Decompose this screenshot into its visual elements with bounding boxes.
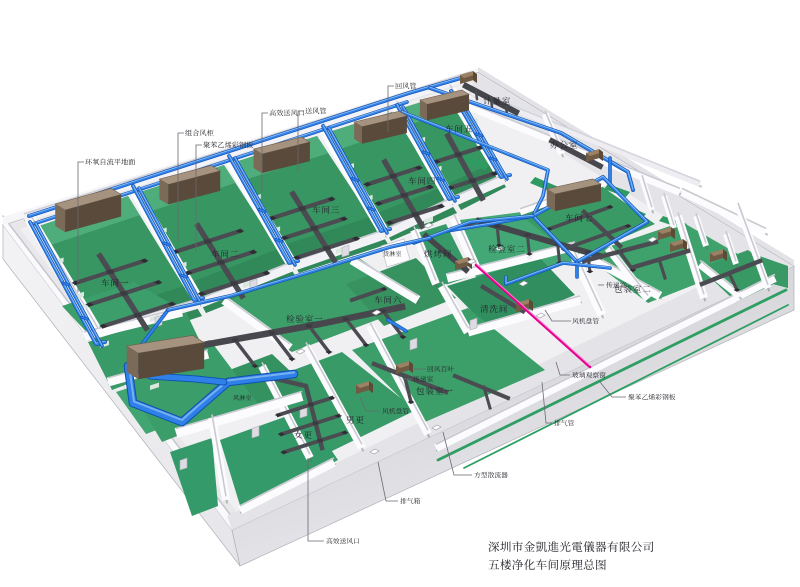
svg-text:风淋室: 风淋室 xyxy=(233,393,252,402)
svg-text:五楼净化车间原理总图: 五楼净化车间原理总图 xyxy=(488,557,607,573)
svg-text:聚苯乙烯彩钢板: 聚苯乙烯彩钢板 xyxy=(628,392,676,402)
svg-text:检验室一: 检验室一 xyxy=(286,313,324,325)
svg-text:风机盘管: 风机盘管 xyxy=(572,316,599,326)
svg-text:车间三: 车间三 xyxy=(312,204,340,216)
svg-text:高效送风口: 高效送风口 xyxy=(269,109,305,119)
svg-text:风机盘管: 风机盘管 xyxy=(382,406,409,416)
svg-text:方型散流器: 方型散流器 xyxy=(474,470,508,480)
svg-text:送风管: 送风管 xyxy=(305,107,327,117)
svg-text:玻璃观察窗: 玻璃观察窗 xyxy=(572,370,606,380)
svg-text:车间五: 车间五 xyxy=(445,123,473,135)
svg-text:车间四: 车间四 xyxy=(408,175,436,187)
svg-text:高效送风口: 高效送风口 xyxy=(326,536,360,546)
svg-text:男更: 男更 xyxy=(346,414,365,426)
svg-text:聚苯乙烯彩钢板: 聚苯乙烯彩钢板 xyxy=(203,141,253,151)
svg-text:货淋室: 货淋室 xyxy=(383,249,402,258)
svg-text:清洗间: 清洗间 xyxy=(480,303,508,315)
svg-text:回风管: 回风管 xyxy=(395,82,417,92)
svg-text:车间六: 车间六 xyxy=(374,294,402,306)
svg-text:环氧自流平地面: 环氧自流平地面 xyxy=(85,158,135,168)
svg-text:车间七: 车间七 xyxy=(565,212,593,224)
svg-text:检验室二: 检验室二 xyxy=(488,243,526,255)
svg-text:排气箱: 排气箱 xyxy=(400,496,421,506)
svg-text:车间一: 车间一 xyxy=(101,277,129,289)
svg-text:排气管: 排气管 xyxy=(554,418,575,428)
svg-text:烘烤间: 烘烤间 xyxy=(424,248,452,260)
svg-text:传递室: 传递室 xyxy=(413,374,434,384)
svg-text:组合风柜: 组合风柜 xyxy=(185,129,214,139)
svg-text:办公室: 办公室 xyxy=(550,139,578,151)
svg-text:计量室: 计量室 xyxy=(483,95,511,107)
svg-text:女更: 女更 xyxy=(294,429,313,441)
svg-text:回风百叶: 回风百叶 xyxy=(427,364,454,374)
svg-text:深圳市金凱進光電儀器有限公司: 深圳市金凱進光電儀器有限公司 xyxy=(488,539,655,555)
svg-text:包装室一: 包装室一 xyxy=(416,385,454,397)
svg-text:车间二: 车间二 xyxy=(211,248,239,260)
svg-text:包装室二: 包装室二 xyxy=(614,283,652,295)
